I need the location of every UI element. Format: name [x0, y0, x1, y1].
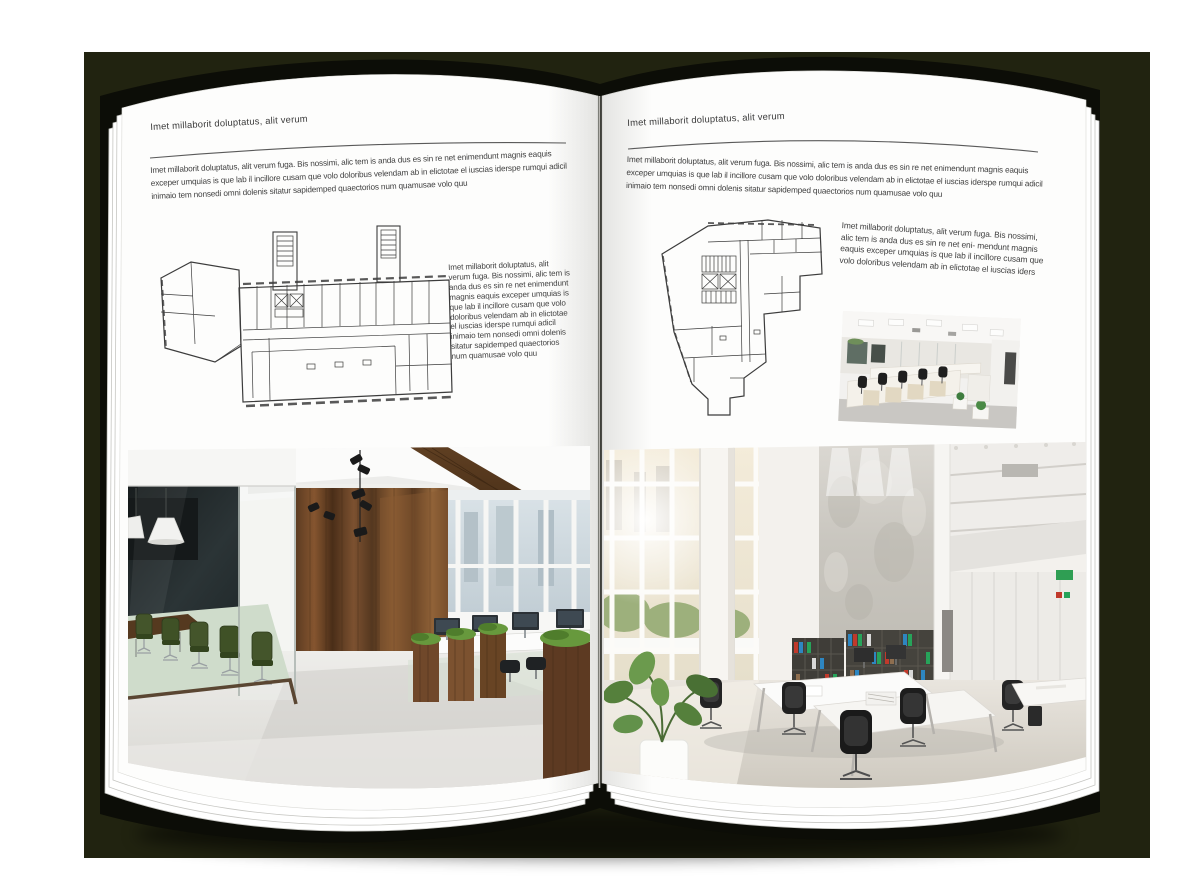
magazine-spread-mockup: Imet millaborit doluptatus, alit verum I…	[0, 0, 1200, 891]
small-photo-office	[838, 311, 1021, 429]
book-mockup-art	[0, 0, 1200, 891]
left-photo-office-interior	[128, 446, 592, 798]
right-photo-office-interior	[561, 435, 1086, 798]
left-page-side-text: Imet millaborit doluptatus, alit verum f…	[448, 258, 576, 362]
